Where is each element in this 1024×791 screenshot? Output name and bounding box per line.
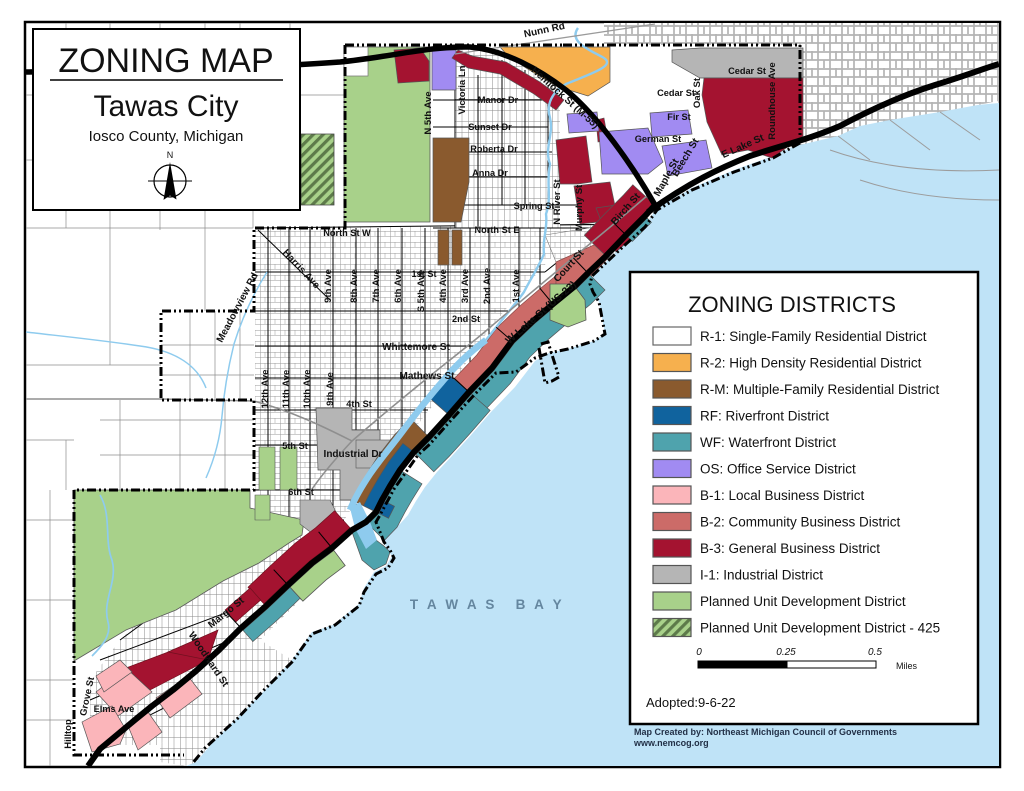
svg-text:N: N	[167, 150, 174, 160]
svg-text:Fir St: Fir St	[667, 112, 690, 122]
svg-text:2nd St: 2nd St	[452, 314, 480, 324]
svg-text:S 5th Ave: S 5th Ave	[416, 270, 427, 313]
svg-text:6th Ave: 6th Ave	[393, 269, 404, 303]
svg-text:Spring St: Spring St	[514, 201, 555, 211]
svg-text:Planned Unit Development Distr: Planned Unit Development District	[700, 594, 906, 609]
svg-text:North St E: North St E	[475, 225, 520, 235]
svg-text:OS: Office Service District: OS: Office Service District	[700, 462, 856, 477]
svg-text:0.25: 0.25	[776, 647, 796, 658]
svg-text:7th Ave: 7th Ave	[371, 269, 382, 303]
svg-text:9th Ave: 9th Ave	[325, 372, 336, 406]
svg-text:R-M: Multiple-Family Residenti: R-M: Multiple-Family Residential Distric…	[700, 382, 940, 397]
svg-text:Whittemore St: Whittemore St	[382, 342, 450, 353]
svg-text:Cedar St: Cedar St	[728, 66, 766, 76]
svg-text:B-2: Community Business Distri: B-2: Community Business District	[700, 515, 901, 530]
svg-text:6th St: 6th St	[288, 487, 314, 497]
svg-text:Sunset Dr: Sunset Dr	[468, 122, 512, 132]
svg-text:RF: Riverfront District: RF: Riverfront District	[700, 409, 829, 424]
svg-text:Roberta Dr: Roberta Dr	[470, 144, 518, 154]
svg-text:Iosco County, Michigan: Iosco County, Michigan	[89, 128, 244, 145]
svg-text:9th Ave: 9th Ave	[323, 269, 334, 303]
svg-text:German St: German St	[635, 134, 681, 144]
svg-text:B-3: General Business District: B-3: General Business District	[700, 541, 880, 556]
svg-text:Planned Unit Development Distr: Planned Unit Development District - 425	[700, 621, 940, 636]
svg-text:Miles: Miles	[896, 661, 918, 671]
svg-text:N 5th Ave: N 5th Ave	[423, 91, 434, 134]
svg-text:8th Ave: 8th Ave	[349, 269, 360, 303]
svg-text:Cedar St: Cedar St	[657, 88, 695, 98]
svg-text:10th Ave: 10th Ave	[302, 370, 313, 409]
svg-text:Anna Dr: Anna Dr	[472, 168, 508, 178]
svg-text:Industrial Dr: Industrial Dr	[324, 449, 383, 460]
svg-text:Manor Dr: Manor Dr	[478, 95, 519, 105]
svg-text:4th Ave: 4th Ave	[438, 269, 449, 303]
svg-text:0.5: 0.5	[868, 647, 882, 658]
svg-text:ZONING MAP: ZONING MAP	[58, 42, 273, 80]
svg-text:Hilltop: Hilltop	[63, 719, 74, 749]
svg-text:www.nemcog.org: www.nemcog.org	[633, 738, 709, 748]
svg-text:4th St: 4th St	[346, 399, 372, 409]
svg-text:Murphy St: Murphy St	[574, 184, 585, 231]
svg-text:Victoria Ln: Victoria Ln	[457, 65, 468, 114]
svg-text:3rd Ave: 3rd Ave	[460, 269, 471, 303]
svg-text:Tawas City: Tawas City	[93, 90, 238, 123]
svg-text:North St W: North St W	[323, 228, 371, 238]
svg-text:5th St: 5th St	[282, 441, 308, 451]
svg-text:2nd Ave: 2nd Ave	[482, 268, 493, 304]
svg-text:Adopted:9-6-22: Adopted:9-6-22	[646, 695, 736, 710]
svg-text:Mathews St: Mathews St	[399, 371, 455, 382]
svg-text:1st Ave: 1st Ave	[511, 269, 522, 302]
svg-text:I-1: Industrial District: I-1: Industrial District	[700, 568, 823, 583]
svg-text:T A W A S B A Y: T A W A S B A Y	[410, 597, 564, 612]
svg-text:N River St: N River St	[552, 178, 563, 224]
svg-text:B-1: Local Business District: B-1: Local Business District	[700, 488, 865, 503]
svg-text:ZONING DISTRICTS: ZONING DISTRICTS	[688, 292, 896, 317]
svg-text:R-1: Single-Family Residential: R-1: Single-Family Residential District	[700, 329, 927, 344]
svg-text:Elms Ave: Elms Ave	[94, 704, 135, 714]
svg-text:11th Ave: 11th Ave	[281, 370, 292, 408]
svg-text:Map Created by: Northeast Mich: Map Created by: Northeast Michigan Counc…	[634, 727, 897, 737]
svg-text:12th Ave: 12th Ave	[260, 370, 271, 409]
svg-text:Oak St: Oak St	[692, 77, 703, 108]
svg-text:WF: Waterfront District: WF: Waterfront District	[700, 435, 836, 450]
svg-text:0: 0	[696, 647, 702, 658]
svg-text:R-2: High Density Residential: R-2: High Density Residential District	[700, 356, 922, 371]
svg-text:Roundhouse Ave: Roundhouse Ave	[767, 62, 778, 139]
